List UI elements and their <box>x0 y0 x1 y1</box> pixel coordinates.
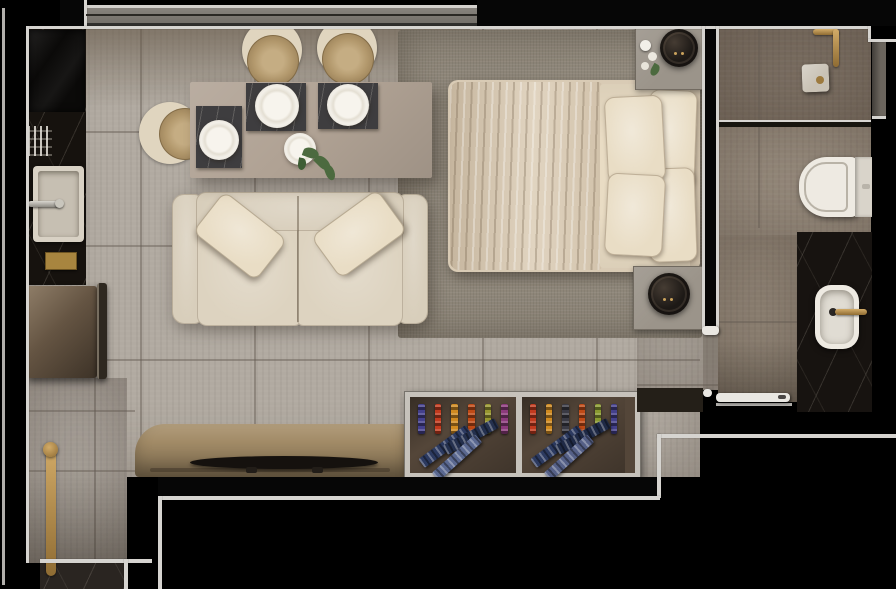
window-frame-line <box>86 14 477 16</box>
sofa <box>172 192 426 326</box>
cooktop <box>29 30 85 112</box>
flower-vase <box>640 40 651 51</box>
grout-line <box>637 384 718 386</box>
lamp-gold-dot <box>681 52 684 55</box>
gold-plaque <box>45 252 77 270</box>
bedroom-wall-band <box>637 388 703 412</box>
sofa-seam <box>297 196 299 322</box>
lamp-gold-dot <box>663 298 666 301</box>
flower-vase <box>641 62 649 70</box>
dinner-plate <box>255 84 299 128</box>
wall-trim <box>158 496 660 500</box>
toilet <box>799 157 859 217</box>
basin-faucet <box>835 309 867 315</box>
bookshelf <box>405 392 640 478</box>
tv-foot <box>312 467 323 473</box>
outer-wall-trim <box>2 8 5 585</box>
lamp-gold-dot <box>674 52 677 55</box>
dish-rack <box>28 126 52 156</box>
wall-trim <box>657 434 896 438</box>
glass-partition <box>718 120 871 127</box>
flush-button <box>862 184 870 189</box>
door-threshold-tick <box>703 389 712 397</box>
wall-trim <box>26 26 870 29</box>
divider-wall <box>705 28 716 328</box>
wall-trim <box>868 39 896 42</box>
top-wall-bar <box>477 0 896 26</box>
flower-vase <box>648 52 657 61</box>
entry-door-knob <box>43 442 58 457</box>
floor-plan <box>0 0 896 589</box>
niche-trim <box>872 116 886 119</box>
sink-basin <box>815 285 859 349</box>
stack-area <box>522 397 625 473</box>
dining-chair-seat <box>247 35 299 87</box>
grout-line <box>718 321 797 323</box>
shelf-compartment <box>410 397 516 473</box>
bathroom-door-handle <box>778 395 786 399</box>
wall-trim <box>124 559 128 589</box>
door-track <box>716 403 792 406</box>
basin-bowl <box>820 290 854 344</box>
television <box>190 456 378 469</box>
grout-line <box>758 28 760 228</box>
wall-trim <box>84 0 87 26</box>
living-bottom-wall <box>158 477 660 497</box>
shower-floor <box>718 28 871 122</box>
wall-trim <box>158 496 162 589</box>
grout-line <box>28 359 700 361</box>
duvet <box>450 82 602 270</box>
bed-pillow <box>604 95 666 184</box>
wall-trim <box>657 434 661 498</box>
bed-pillow <box>604 173 666 258</box>
refrigerator <box>27 286 97 378</box>
faucet-knob <box>55 199 64 208</box>
grout-line <box>28 410 135 412</box>
entry-door-handle <box>46 444 56 576</box>
wall-trim <box>40 559 152 563</box>
table-lamp <box>660 29 698 67</box>
dining-chair-seat <box>322 33 374 85</box>
floor-shading <box>28 470 127 563</box>
dinner-plate <box>199 120 239 160</box>
wall-trim <box>702 26 705 330</box>
wall-niche <box>872 42 886 118</box>
toilet-seat <box>804 162 848 212</box>
shower-arm <box>833 29 839 67</box>
tv-foot <box>246 467 257 473</box>
wall-trim <box>26 26 29 563</box>
table-lamp <box>648 273 690 315</box>
lamp-gold-dot <box>670 298 673 301</box>
refrigerator-hinge <box>97 283 107 379</box>
stack-area <box>410 397 516 473</box>
shower-foot-dot <box>816 76 824 84</box>
wall-end-cap <box>702 326 719 335</box>
wall-trim <box>716 26 719 330</box>
shelf-compartment <box>522 397 625 473</box>
dinner-plate <box>327 84 369 126</box>
bed <box>448 80 700 272</box>
